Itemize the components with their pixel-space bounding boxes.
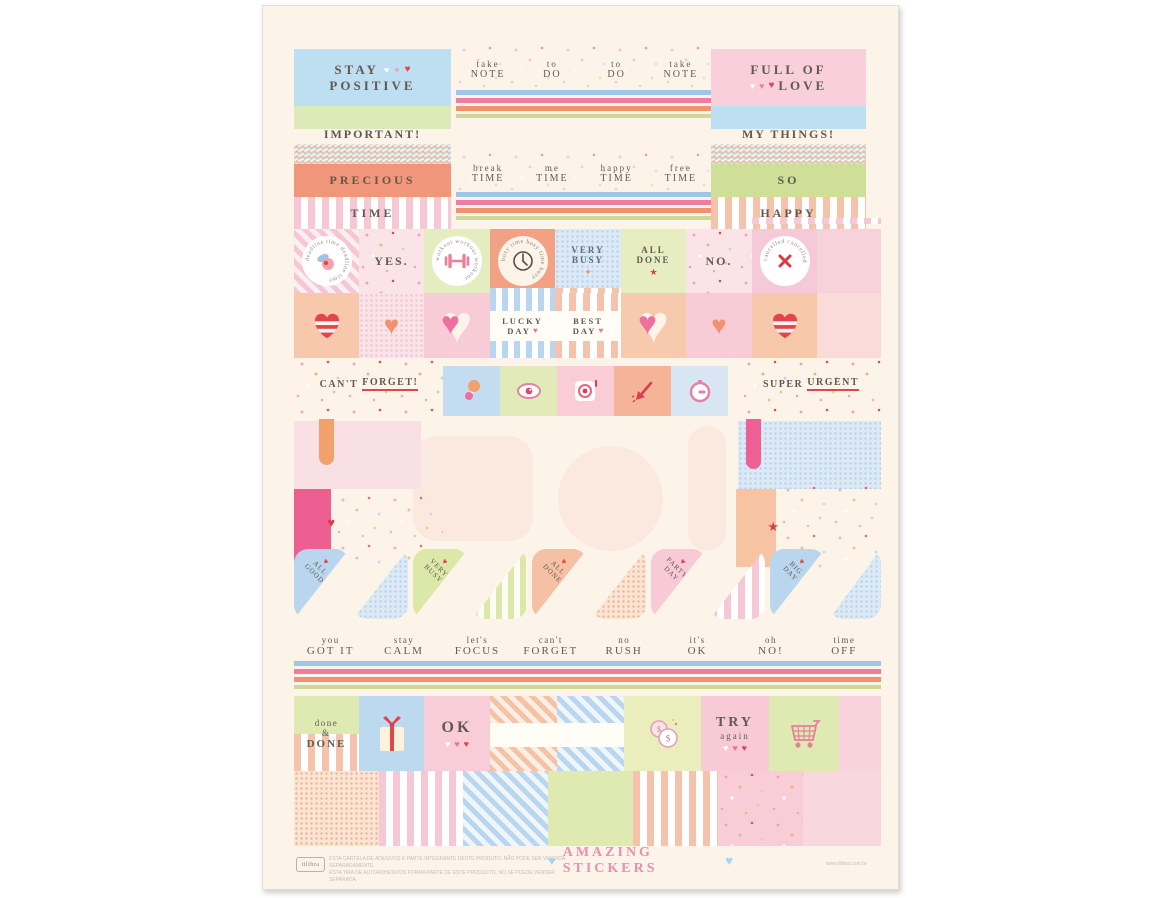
super-text: SUPER [763,379,803,390]
heart-icon: ♥ [548,853,556,869]
label-super-urgent: SUPER URGENT [741,374,881,394]
washi-tape-phrases: you GOT IT stay CALM let's FOCUS can't F… [294,631,881,661]
washi-stripes [294,661,881,689]
push-pin-icon [457,376,487,406]
write-in-band [490,723,624,747]
watermark [688,426,726,551]
sheet-title-text: AMAZING STICKERS [563,845,719,877]
eye-icon [514,380,544,402]
washi-note-top: take [669,59,692,69]
washi-time-bottom: TIME [665,173,697,184]
alarm-icon [572,377,600,405]
sticker-heart-big: ♥ ♥ [424,293,490,358]
phrase-top: no [618,635,630,645]
washi-time-bottom: TIME [600,173,632,184]
washi-note-cell: take NOTE [649,59,713,80]
washi-time-top: happy [601,163,633,173]
sticker-done-done: done & DONE [294,696,359,771]
sticker-ok: OK ♥ ♥ ♥ [424,696,490,771]
pattern-square-green [548,771,633,846]
heart-icon: ♥ [711,311,726,341]
washi-tape-times: break TIME me TIME happy TIME free TIME [456,156,713,190]
washi-note-bottom: DO [543,69,561,80]
phrase-cell: can't FORGET [514,635,587,657]
dotted-band-right [711,144,866,164]
best-line2: DAY [573,326,597,336]
sticker-flag-party-day: ♥ PARTY DAY [651,549,706,619]
striped-heart-icon [311,311,343,341]
sticker-heart-striped [294,293,359,358]
sticker-try-again: TRY again ♥ ♥ ♥ [701,696,769,771]
heart-icon: ♥ [759,81,764,91]
sticker-precious-time-bottom: TIME [294,197,451,229]
watermark [558,446,663,551]
washi-time-top: free [670,163,692,173]
sticker-cart [769,696,839,771]
ok-label: OK [442,719,473,737]
sticker-arrow [614,366,671,416]
star-icon: ★ [767,519,779,535]
pattern-square-pink [803,771,881,846]
flag-pattern [472,549,527,619]
washi-time-top: me [545,163,560,173]
heart-icon: ♥ [750,81,755,91]
sticker-heart-orange: ♥ [359,293,424,358]
all-done-line2: DONE [636,255,670,265]
flag-pattern [591,549,646,619]
coins-icon: $ $ [643,714,683,754]
phrase-bottom: OFF [831,645,857,657]
try-line2: again [720,731,750,741]
yes-label: YES. [374,254,408,269]
sticker-gift [359,696,424,771]
heart-icon: ♥ [732,743,737,753]
sparkle-icon: ✦ [584,267,592,278]
washi-time-bottom: TIME [536,173,568,184]
full-of-love-line1: FULL OF [750,62,826,78]
full-of-love-line2: LOVE [778,78,827,94]
sticker-eye [500,366,557,416]
phrase-cell: it's OK [661,635,734,657]
so-line: SO [777,173,799,188]
deadline-badge-svg: deadline time deadline time [300,234,354,288]
sticker-so-happy-top: SO [711,164,866,197]
phrase-bottom: FORGET [523,645,578,657]
heart-icon: ♥ [394,65,399,75]
phrase-bottom: CALM [384,645,424,657]
done-line3: DONE [307,738,347,750]
sticker-all-done: ALL DONE ★ [621,229,686,293]
stay-positive-line2: POSITIVE [329,78,415,94]
tab-orange [319,419,334,465]
phrase-cell: no RUSH [588,635,661,657]
cart-icon [784,715,824,753]
heart-icon: ♥ [405,64,411,75]
washi-tape-notes: take NOTE to DO to DO take NOTE [456,51,713,87]
sticker-lucky-day: LUCKY DAY ♥ [490,293,555,358]
pattern-square-diag-blue [463,771,548,846]
website-text: www.tilibra.com.br [826,861,886,867]
brand-logo: tilibra [296,857,325,872]
phrase-top: stay [394,635,415,645]
no-label: NO. [706,254,733,269]
washi-time-cell: me TIME [520,163,584,184]
sticker-coins: $ $ [624,696,701,771]
sticker-precious-time-top: PRECIOUS [294,164,451,197]
heart-icon: ♥ [384,65,389,75]
washi-time-cell: free TIME [649,163,713,184]
phrase-top: it's [690,635,706,645]
sticker-sheet: STAY ♥ ♥ ♥ POSITIVE take NOTE to DO to D… [262,5,899,890]
washi-note-top: to [611,59,622,69]
sticker-very-busy: VERY BUSY ✦ [555,229,621,293]
sticker-deadline-badge: deadline time deadline time [294,229,359,293]
busy-badge-svg: busy time busy time busy [496,234,550,288]
sticker-heart-orange: ♥ [686,293,752,358]
done-line1: done [315,718,339,728]
cant-text: CAN'T [320,379,359,390]
sticker-note-block-pink [294,421,421,489]
washi-note-bottom: DO [607,69,625,80]
sheet-title: ♥ AMAZING STICKERS ♥ [548,851,733,871]
heart-icon: ♥ [742,743,747,753]
heart-icon: ♥ [384,311,399,341]
phrase-bottom: GOT IT [307,645,355,657]
pattern-square-dots-peach [294,771,379,846]
washi-time-bottom: TIME [472,173,504,184]
washi-stripes [456,192,713,220]
legal-line1: ESTA CARTELA DE ADESIVOS É PARTE INTEGRA… [329,856,579,870]
heart-icon: ♥ [441,307,460,339]
sticker-so-happy-bottom: HAPPY [711,197,866,229]
dollar-text: $ [665,733,670,743]
washi-note-bottom: NOTE [664,69,699,80]
try-line1: TRY [716,715,754,731]
phrase-top: oh [765,635,777,645]
heart-icon: ♥ [725,853,733,869]
legal-line2: ESTA TIRA DE AUTOADHESIVOS FORMA PARTE D… [329,870,579,884]
phrase-bottom: OK [688,645,708,657]
phrase-top: let's [467,635,489,645]
heart-icon: ♥ [723,743,728,753]
all-done-line1: ALL [641,245,666,255]
lucky-line1: LUCKY [502,316,543,326]
cancelled-badge-svg: cancelled cancelled [758,234,812,288]
sticker-flag-very-busy: ♥ VERY BUSY [413,549,468,619]
dashed-strip [294,218,360,224]
sticker-workout-badge: workout workout workout [424,229,490,293]
tab-pink [746,419,761,469]
heart-icon: ♥ [533,326,538,335]
done-line2: & [322,728,331,738]
pattern-square-stripe-orange [633,771,718,846]
star-icon: ★ [649,267,657,278]
washi-note-cell: to DO [520,59,584,80]
sticker-pin [443,366,500,416]
precious-line: PRECIOUS [329,173,415,188]
sticker-full-of-love: FULL OF ♥ ♥ ♥ LOVE [711,49,866,106]
phrase-cell: oh NO! [734,635,807,657]
striped-heart-icon [769,311,801,341]
heart-icon: ♥ [327,515,335,531]
sticker-best-day: BEST DAY ♥ [555,293,621,358]
sticker-flag-all-done: ♥ ALL DONE [532,549,587,619]
washi-time-top: break [473,163,503,173]
phrase-top: can't [539,635,563,645]
phrase-bottom: FOCUS [455,645,500,657]
stay-positive-line1: STAY [334,62,379,78]
sticker-flag-big-day: ♥ BIG DAY [770,549,825,619]
heart-icon: ♥ [464,739,469,749]
arrow-icon [628,376,658,406]
washi-note-bottom: NOTE [471,69,506,80]
brand-text: tilibra [302,862,320,868]
sticker-cancelled-badge: cancelled cancelled [752,229,817,293]
washi-note-cell: take NOTE [456,59,520,80]
workout-badge-svg: workout workout workout [430,234,484,288]
washi-note-top: take [477,59,500,69]
sticker-timer [671,366,728,416]
very-busy-line1: VERY [571,245,604,255]
heart-icon: ♥ [598,326,603,335]
pattern-square-stripe-pink [379,771,463,846]
phrase-top: you [322,635,340,645]
lucky-line2: DAY [507,326,531,336]
sticker-heart-big: ♥ ♥ [621,293,686,358]
heart-icon: ♥ [445,739,450,749]
sticker-alarm [557,366,614,416]
washi-note-cell: to DO [585,59,649,80]
gift-icon [374,713,410,755]
pattern-square-pink [817,229,881,293]
pattern-square-confetti-pink [718,771,803,846]
heart-icon: ♥ [638,307,657,339]
phrase-bottom: NO! [758,645,784,657]
phrase-cell: let's FOCUS [441,635,514,657]
phrase-top: time [833,635,855,645]
pattern-square-pink [839,696,881,771]
sticker-stay-positive: STAY ♥ ♥ ♥ POSITIVE [294,49,451,106]
sticker-yes: YES. [359,229,424,293]
phrase-cell: time OFF [808,635,881,657]
label-important: IMPORTANT! [294,125,451,143]
sticker-heart-striped [752,293,817,358]
sticker-busy-badge: busy time busy time busy [490,229,555,293]
pattern-square-pink [817,293,881,358]
sticker-flag-all-good: ♥ ALL GOOD [294,549,349,619]
label-my-things: MY THINGS! [711,125,866,143]
dotted-band-left [294,144,451,164]
best-line1: BEST [573,316,603,326]
phrase-cell: you GOT IT [294,635,367,657]
washi-time-cell: happy TIME [585,163,649,184]
sticker-no: NO. [686,229,752,293]
forget-text: FORGET! [362,377,418,391]
heart-icon: ♥ [768,80,774,91]
washi-stripes [456,90,713,118]
heart-icon: ♥ [454,739,459,749]
washi-time-cell: break TIME [456,163,520,184]
very-busy-line2: BUSY [572,255,604,265]
dashed-strip [752,218,881,224]
urgent-text: URGENT [807,377,859,391]
phrase-cell: stay CALM [367,635,440,657]
washi-note-top: to [547,59,558,69]
phrase-bottom: RUSH [606,645,643,657]
label-cant-forget: CAN'T FORGET! [294,374,444,394]
timer-icon [686,377,714,405]
legal-text: ESTA CARTELA DE ADESIVOS É PARTE INTEGRA… [329,856,579,884]
